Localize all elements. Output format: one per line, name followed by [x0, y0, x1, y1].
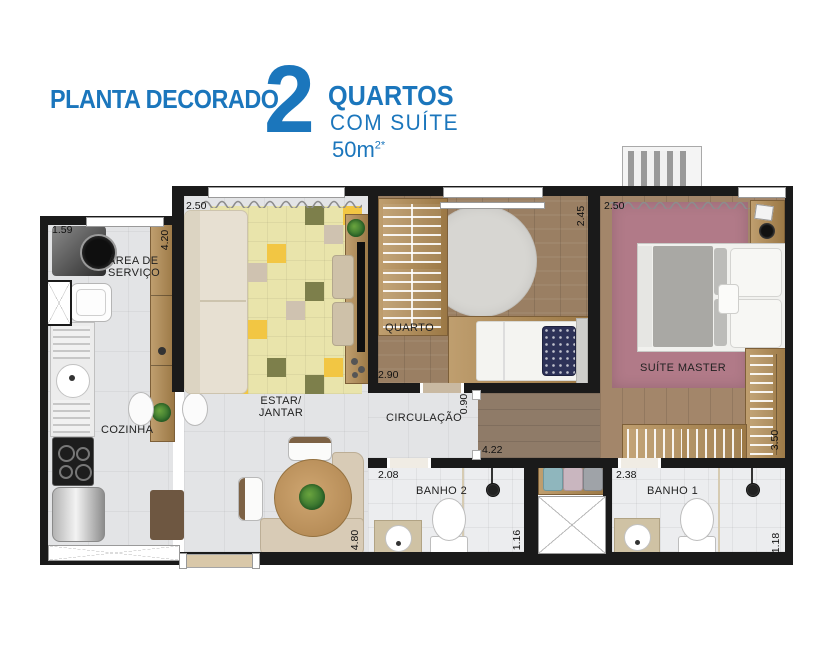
- dim-banho2-width: 2.08: [378, 469, 398, 481]
- label-circulacao: CIRCULAÇÃO: [386, 412, 462, 424]
- fridge: [52, 487, 105, 542]
- entry-door-post: [252, 553, 260, 569]
- label-cozinha: COZINHA: [101, 424, 153, 436]
- toilet-bowl: [680, 498, 714, 541]
- suite-window: [738, 187, 786, 198]
- chair-backrest: [239, 478, 245, 520]
- wall-left: [40, 216, 48, 565]
- bedroom2-window: [443, 187, 543, 198]
- bedroom-count: 2: [264, 52, 315, 148]
- floor-plan-page: { "header": { "kicker": "PLANTA DECORADO…: [0, 0, 826, 660]
- counter-plant: [152, 403, 171, 422]
- bed-blanket: [653, 246, 713, 347]
- wall-bedroom2-bottom: [368, 383, 600, 393]
- dining-chair: [288, 436, 332, 461]
- lumbar-pillow: [718, 284, 739, 314]
- hanger-rack: [627, 429, 682, 459]
- bath1-tile-divider: [718, 468, 720, 552]
- suite-wardrobe-side: [745, 348, 788, 464]
- bath1-basin: [624, 524, 651, 551]
- sofa-backrest: [185, 211, 200, 393]
- hanger-rod: [411, 204, 413, 263]
- floor-cushion: [332, 302, 354, 346]
- sofa-seam: [200, 300, 246, 302]
- entry-door-sill: [184, 554, 255, 568]
- gas-box: [46, 280, 72, 326]
- towel-pink: [563, 467, 583, 491]
- burner: [58, 445, 75, 462]
- tv: [357, 242, 365, 352]
- double-bed: [637, 243, 787, 352]
- sheet-fold: [503, 322, 505, 380]
- rug-square: [248, 263, 267, 282]
- bedroom2-door: [420, 383, 464, 393]
- label-banho-1: BANHO 1: [647, 485, 698, 497]
- bath2-faucet: [396, 541, 401, 546]
- deco-vase: [358, 366, 365, 373]
- corridor-door-post: [472, 390, 481, 400]
- ac-grille: [628, 151, 686, 187]
- wall-kitchen-living: [172, 186, 184, 392]
- drainboard: [53, 326, 90, 359]
- label-banho-2: BANHO 2: [416, 485, 467, 497]
- dim-corridor-length: 4.22: [482, 444, 502, 456]
- rug-square: [267, 358, 286, 377]
- wall-living-bedroom2: [368, 196, 378, 392]
- corridor-door-post: [472, 450, 481, 460]
- laundry-tank: [70, 283, 112, 322]
- table-lamp: [759, 223, 775, 239]
- counter-seam: [151, 295, 174, 296]
- bath2-vanity: [374, 520, 422, 555]
- wall-corridor-bottom: [462, 458, 618, 468]
- entry-door-post: [179, 553, 187, 569]
- burner: [59, 465, 73, 479]
- wall-right: [785, 186, 793, 565]
- dim-quarto-height: 2.45: [575, 206, 587, 226]
- kitchen-sink: [56, 364, 90, 398]
- rug-square: [305, 375, 324, 394]
- deco-vase: [352, 372, 358, 378]
- label-estar-jantar: ESTAR/ JANTAR: [259, 395, 303, 419]
- dining-chair: [238, 477, 263, 521]
- service-window: [86, 217, 164, 227]
- label-area-servico: ÁREA DE SERVIÇO: [108, 255, 160, 279]
- bed-fold: [638, 246, 652, 347]
- living-curtain: [202, 200, 362, 208]
- wall-bedroom2-suite: [588, 196, 600, 390]
- rug-square: [267, 244, 286, 263]
- towel-grey: [583, 467, 603, 491]
- rug-square: [324, 225, 343, 244]
- label-suite-master: SUÍTE MASTER: [640, 362, 726, 374]
- area-sup: 2*: [375, 140, 385, 152]
- chair-backrest: [289, 437, 331, 443]
- title-area: 50m2*: [332, 137, 385, 163]
- hanger-rack: [687, 429, 742, 459]
- bath2-basin: [385, 525, 412, 552]
- floor-cushion: [332, 255, 354, 299]
- stove-cooktop: [52, 437, 94, 486]
- towel-blue: [543, 467, 563, 491]
- wall-shaft-left: [524, 458, 538, 565]
- dim-banho1-width: 2.38: [616, 469, 636, 481]
- shower-arm: [751, 468, 753, 484]
- toilet-bowl: [432, 498, 466, 541]
- counter-seam: [151, 365, 174, 366]
- dim-suite-width: 2.50: [604, 200, 624, 212]
- deco-vase: [351, 358, 358, 365]
- curtain-rail: [440, 202, 545, 209]
- bed-pillow: [542, 326, 576, 376]
- rug-square: [305, 206, 324, 225]
- dim-quarto-width: 2.90: [378, 369, 398, 381]
- stool: [182, 392, 208, 426]
- sofa: [184, 210, 248, 394]
- page-title: PLANTA DECORADO: [50, 84, 279, 115]
- rack-plant: [347, 219, 365, 237]
- area-value: 50m: [332, 137, 375, 162]
- drainboard: [53, 400, 90, 433]
- title-quartos: QUARTOS: [328, 80, 454, 112]
- shower-head: [486, 483, 500, 497]
- rug-square: [324, 358, 343, 377]
- shower-arm: [491, 468, 493, 484]
- rug-square: [248, 320, 267, 339]
- dim-servico-height: 4.20: [159, 230, 171, 250]
- kitchen-counter: [50, 322, 95, 437]
- dim-banho2-height: 1.16: [511, 530, 523, 550]
- hanger-rack: [750, 354, 773, 402]
- nightstand: [750, 200, 785, 247]
- living-window: [208, 187, 345, 198]
- tank-basin: [76, 289, 106, 316]
- headboard: [576, 318, 588, 384]
- dim-circulacao-width: 0.90: [458, 394, 470, 414]
- photo-frame: [754, 204, 774, 221]
- bath1-vanity: [614, 518, 660, 555]
- bath1-door: [618, 458, 661, 468]
- rug-square: [305, 282, 324, 301]
- shower-box: [538, 496, 606, 554]
- rug-square: [286, 301, 305, 320]
- stool: [128, 392, 154, 426]
- kitchen-window: [48, 545, 180, 561]
- counter-bottle: [158, 347, 166, 355]
- burner: [75, 464, 92, 481]
- bedroom2-wardrobe: [378, 198, 448, 336]
- label-quarto: QUARTO: [385, 322, 434, 334]
- dim-living-height: 4.80: [349, 530, 361, 550]
- shower-head: [746, 483, 760, 497]
- dim-servico-width: 1.59: [52, 224, 72, 236]
- burner: [76, 447, 90, 461]
- bath2-door: [387, 458, 431, 468]
- dim-suite-closet-height: 3.50: [769, 430, 781, 450]
- dim-banho1-height: 1.18: [770, 533, 782, 553]
- entry-mat: [150, 490, 184, 540]
- kitchen-faucet: [69, 375, 75, 381]
- dim-living-width: 2.50: [186, 200, 206, 212]
- bath1-faucet: [635, 540, 640, 545]
- hanger-rod: [411, 269, 413, 328]
- table-plant: [299, 484, 325, 510]
- title-com-suite: COM SUÍTE: [330, 110, 459, 136]
